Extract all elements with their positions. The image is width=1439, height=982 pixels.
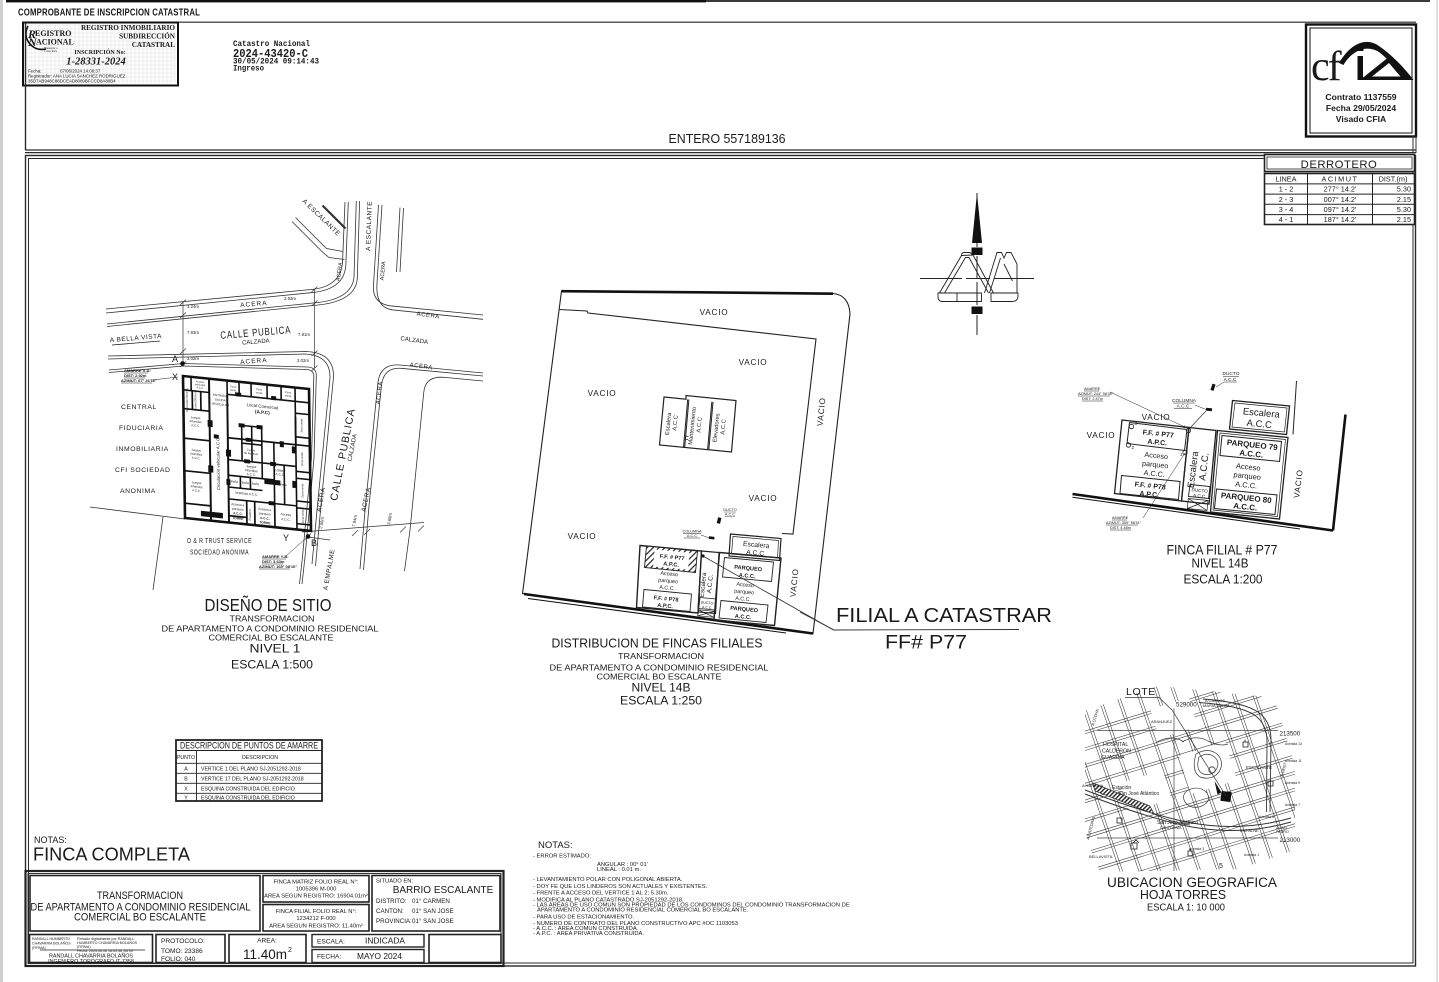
svg-text:(FIRMA): (FIRMA): [32, 946, 46, 950]
svg-text:1005396 M-000: 1005396 M-000: [296, 887, 337, 893]
svg-text:CALDERON: CALDERON: [1102, 749, 1131, 755]
svg-text:FINCA COMPLETA: FINCA COMPLETA: [33, 844, 191, 865]
svg-text:Zona verde: Zona verde: [300, 483, 304, 498]
svg-text:Cuarto Eléctrico: Cuarto Eléctrico: [193, 391, 197, 411]
svg-text:Baño: Baño: [231, 479, 239, 484]
svg-text:1: 1: [1180, 452, 1183, 457]
svg-text:ACIMUT: ACIMUT: [1322, 174, 1359, 183]
svg-text:REGISTRO INMOBILIARIO: REGISTRO INMOBILIARIO: [81, 24, 175, 32]
svg-text:5.30: 5.30: [1397, 185, 1411, 194]
svg-text:LINEA: LINEA: [1275, 174, 1296, 183]
svg-text:COMPROBANTE DE INSCRIPCION CAT: COMPROBANTE DE INSCRIPCION CATASTRAL: [18, 8, 200, 19]
svg-text:A: A: [172, 354, 178, 364]
svg-text:DUCTO: DUCTO: [723, 508, 736, 512]
svg-text:CFI SOCIEDAD: CFI SOCIEDAD: [115, 467, 171, 474]
svg-text:FILIAL A CATASTRAR: FILIAL A CATASTRAR: [836, 605, 1052, 627]
svg-text:- LEVANTAMIENTO POLAR CON POLI: - LEVANTAMIENTO POLAR CON POLIGONAL ABIE…: [533, 877, 683, 883]
svg-text:Avenida 11: Avenida 11: [1285, 759, 1302, 763]
svg-text:AZIMUT: 244° 56'46": AZIMUT: 244° 56'46": [1078, 392, 1114, 396]
svg-text:2 - 3: 2 - 3: [1279, 195, 1294, 204]
svg-text:DESCRIPCION DE PUNTOS DE AMARR: DESCRIPCION DE PUNTOS DE AMARRE: [180, 741, 318, 751]
svg-text:CATASTRAL: CATASTRAL: [132, 41, 175, 49]
svg-text:BELLAVISTA: BELLAVISTA: [1089, 854, 1113, 859]
svg-text:ESQUINA CONSTRUIDA DEL EDIFICI: ESQUINA CONSTRUIDA DEL EDIFICIO: [201, 796, 295, 802]
svg-text:1-28331-2024: 1-28331-2024: [66, 57, 126, 68]
svg-text:- DOY FE QUE LOS LINDEROS SON: - DOY FE QUE LOS LINDEROS SON ACTUALES Y…: [533, 884, 708, 890]
svg-text:2.15: 2.15: [1397, 195, 1411, 204]
svg-text:01° SAN JOSE: 01° SAN JOSE: [412, 918, 454, 925]
svg-text:INMOBILIARIA: INMOBILIARIA: [116, 446, 169, 453]
svg-text:ESCALA 1:250: ESCALA 1:250: [620, 694, 702, 708]
svg-text:TRANSFORMACION: TRANSFORMACION: [618, 651, 704, 661]
svg-text:ESCALA 1:200: ESCALA 1:200: [1184, 573, 1263, 587]
svg-text:CENTRAL: CENTRAL: [121, 404, 157, 411]
svg-text:Y: Y: [283, 533, 289, 543]
svg-text:Circulación vehicular A.C.C.: Circulación vehicular A.C.C.: [215, 436, 221, 490]
svg-text:SUBDIRECCIÓN: SUBDIRECCIÓN: [119, 31, 176, 41]
svg-text:213500: 213500: [1280, 731, 1301, 738]
svg-text:PROTOCOLO:: PROTOCOLO:: [161, 938, 205, 945]
svg-text:2: 2: [288, 947, 292, 954]
svg-text:DESCRIPCION: DESCRIPCION: [242, 755, 278, 761]
svg-text:cf: cf: [1311, 44, 1342, 90]
svg-text:MAYO 2024: MAYO 2024: [357, 951, 402, 961]
svg-text:FF# P77: FF# P77: [885, 633, 967, 654]
svg-text:MARIA ULLOA: MARIA ULLOA: [1203, 703, 1230, 708]
svg-text:DISTRITO:: DISTRITO:: [376, 898, 407, 905]
svg-text:3.02m: 3.02m: [297, 358, 309, 363]
svg-text:35D7AB948C88DCEAD8089BFCCD8A80: 35D7AB948C88DCEAD8089BFCCD8A80B4: [28, 79, 116, 84]
svg-text:NIVEL 14B: NIVEL 14B: [1192, 557, 1249, 571]
svg-text:NIVEL 14B: NIVEL 14B: [632, 681, 691, 695]
svg-text:- FRENTE A ACCESO DEL VERTICE: - FRENTE A ACCESO DEL VERTICE 1 AL 2: 5.…: [533, 891, 669, 897]
svg-text:AZIMUT: 359° 56'51": AZIMUT: 359° 56'51": [1106, 521, 1142, 525]
svg-text:AMARRE: AMARRE: [1112, 516, 1129, 520]
svg-text:097° 14.2': 097° 14.2': [1324, 205, 1357, 214]
svg-text:AZIMUT: 67° 26'16": AZIMUT: 67° 26'16": [121, 378, 157, 383]
svg-text:7.91m: 7.91m: [298, 332, 310, 337]
svg-text:213000: 213000: [1280, 837, 1301, 844]
svg-text:Ingreso: Ingreso: [233, 65, 264, 74]
svg-text:VACIO: VACIO: [749, 494, 778, 503]
svg-text:A.C.C.: A.C.C.: [196, 385, 204, 390]
svg-text:FECHA:: FECHA:: [317, 954, 341, 961]
svg-text:- PARA USO DE ESTACIONAMIENTO.: - PARA USO DE ESTACIONAMIENTO.: [533, 915, 635, 921]
svg-text:X: X: [184, 787, 188, 793]
svg-text:AREA:: AREA:: [257, 938, 277, 945]
svg-text:1 - 2: 1 - 2: [1279, 185, 1294, 194]
svg-text:verde: verde: [285, 393, 292, 398]
svg-text:Zona verde: Zona verde: [299, 418, 303, 433]
svg-text:Avenida 9: Avenida 9: [1285, 781, 1300, 785]
svg-text:A: A: [184, 767, 188, 773]
svg-text:CANTON:: CANTON:: [376, 908, 404, 915]
svg-text:1234212 F-000: 1234212 F-000: [296, 916, 335, 922]
svg-text:3 - 4: 3 - 4: [1279, 205, 1294, 214]
svg-text:5: 5: [1219, 863, 1223, 870]
svg-text:COLUMNA: COLUMNA: [683, 530, 702, 534]
svg-text:187° 14.2': 187° 14.2': [1324, 215, 1357, 224]
svg-text:2: 2: [1132, 445, 1135, 450]
svg-text:Baño: Baño: [242, 480, 250, 485]
svg-text:2.93m: 2.93m: [284, 296, 296, 301]
svg-text:ESCALA:: ESCALA:: [317, 939, 345, 946]
svg-text:FIDUCIARIA: FIDUCIARIA: [119, 425, 164, 432]
svg-text:AZIMUT: 165° 08'16": AZIMUT: 165° 08'16": [259, 564, 297, 569]
svg-text:007° 14.2': 007° 14.2': [1324, 195, 1357, 204]
svg-text:verde: verde: [230, 388, 237, 393]
svg-text:01° SAN JOSE: 01° SAN JOSE: [412, 908, 454, 915]
svg-text:O & R TRUST SERVICE: O & R TRUST SERVICE: [187, 536, 252, 545]
svg-text:B: B: [184, 777, 188, 783]
svg-text:Avenida 5: Avenida 5: [1259, 815, 1274, 819]
svg-text:Avenida 7: Avenida 7: [1285, 803, 1300, 807]
svg-text:ENTERO 557189136: ENTERO 557189136: [669, 132, 786, 146]
svg-text:FINCA MATRIZ FOLIO REAL N°:: FINCA MATRIZ FOLIO REAL N°:: [273, 880, 358, 886]
svg-text:VACIO: VACIO: [568, 532, 597, 541]
svg-text:TOMO: 23386: TOMO: 23386: [161, 948, 203, 955]
svg-text:COMERCIAL BO ESCALANTE: COMERCIAL BO ESCALANTE: [74, 912, 206, 924]
svg-text:Avenida 1: Avenida 1: [1244, 853, 1259, 857]
svg-text:PEDRO: PEDRO: [1276, 830, 1289, 834]
svg-text:01° CARMEN: 01° CARMEN: [412, 898, 450, 905]
svg-text:BARRIO ESCALANTE: BARRIO ESCALANTE: [393, 885, 494, 896]
svg-text:B: B: [311, 538, 317, 548]
svg-text:ESCALA 1:500: ESCALA 1:500: [231, 658, 313, 672]
svg-text:3.02m: 3.02m: [187, 356, 199, 361]
svg-text:DIST: 4.48m: DIST: 4.48m: [1110, 526, 1131, 530]
svg-text:4 - 1: 4 - 1: [1279, 215, 1294, 224]
svg-text:A.C.C: A.C.C: [687, 534, 697, 538]
svg-text:VACIO: VACIO: [1142, 413, 1171, 422]
svg-text:TRANSFORMACION: TRANSFORMACION: [230, 614, 315, 624]
svg-text:11.40m: 11.40m: [243, 947, 287, 962]
svg-text:CHAVARRIA BOLAÑOS: CHAVARRIA BOLAÑOS: [32, 941, 71, 946]
svg-text:LOTE: LOTE: [1126, 686, 1156, 698]
svg-text:3: 3: [1135, 421, 1138, 426]
svg-text:APARTAMENTO A CONDOMINIO RESID: APARTAMENTO A CONDOMINIO RESIDENCIAL COM…: [537, 908, 749, 914]
svg-text:Visado CFIA: Visado CFIA: [1336, 114, 1386, 124]
svg-text:ESCALANTE: ESCALANTE: [1246, 765, 1272, 770]
svg-text:CALIFORNIA: CALIFORNIA: [1160, 826, 1182, 830]
svg-text:ANONIMA: ANONIMA: [120, 488, 156, 495]
svg-text:PUNTO: PUNTO: [177, 755, 195, 761]
svg-text:FINCA FILIAL # P77: FINCA FILIAL # P77: [1167, 542, 1278, 558]
svg-text:ESQUINA CONSTRUIDA DEL EDIFICI: ESQUINA CONSTRUIDA DEL EDIFICIO: [201, 787, 295, 793]
svg-text:VERTICE 1 DEL PLANO SJ-2051292: VERTICE 1 DEL PLANO SJ-2051292-2018: [201, 767, 301, 773]
svg-text:A.C.C: A.C.C: [725, 513, 735, 517]
svg-text:- ERROR ESTIMADO:: - ERROR ESTIMADO:: [533, 854, 591, 860]
svg-text:TRANSFORMACION: TRANSFORMACION: [97, 890, 183, 902]
svg-text:LINEAL : 0.01 m.: LINEAL : 0.01 m.: [597, 867, 641, 873]
svg-text:Y: Y: [184, 796, 188, 802]
svg-text:AMARRE: AMARRE: [1084, 387, 1101, 391]
svg-text:NIVEL 1: NIVEL 1: [250, 642, 301, 656]
svg-text:EMPALNE: EMPALNE: [1240, 828, 1259, 833]
svg-text:529000: 529000: [1176, 702, 1197, 709]
svg-text:7.93m: 7.93m: [187, 330, 199, 335]
svg-text:ARANJUEZ: ARANJUEZ: [1151, 719, 1173, 724]
svg-text:277° 14.2': 277° 14.2': [1324, 185, 1357, 194]
svg-text:RANDALL HUMBERTO: RANDALL HUMBERTO: [32, 937, 70, 941]
svg-text:Zona verde: Zona verde: [301, 509, 305, 524]
svg-text:HOJA TORRES: HOJA TORRES: [1140, 887, 1226, 902]
svg-text:3.24m: 3.24m: [187, 304, 199, 309]
svg-text:INGENIERO TOPOGRAFO IT-7358: INGENIERO TOPOGRAFO IT-7358: [48, 959, 134, 965]
svg-text:PROVINCIA:: PROVINCIA:: [376, 918, 412, 925]
svg-text:Costa Rica: Costa Rica: [44, 49, 58, 53]
svg-text:SITUADO EN:: SITUADO EN:: [376, 879, 413, 885]
svg-text:5.30: 5.30: [1397, 205, 1411, 214]
svg-text:DUCTO: DUCTO: [1223, 371, 1240, 377]
svg-text:DIST: 2.47m: DIST: 2.47m: [1082, 397, 1103, 401]
svg-text:INSCRIPCIÓN No:: INSCRIPCIÓN No:: [74, 48, 125, 56]
svg-text:NOTAS:: NOTAS:: [538, 840, 573, 851]
svg-text:verde: verde: [256, 390, 263, 395]
svg-text:VACIO: VACIO: [700, 308, 729, 317]
svg-text:ESCALA 1: 10 000: ESCALA 1: 10 000: [1147, 902, 1225, 914]
svg-text:FOLIO: 040: FOLIO: 040: [161, 956, 196, 963]
svg-text:Avenida 13: Avenida 13: [1285, 742, 1302, 746]
svg-text:DERROTERO: DERROTERO: [1301, 159, 1378, 171]
svg-text:AREA SEGUN REGISTRO: 11.40m²: AREA SEGUN REGISTRO: 11.40m²: [269, 924, 363, 930]
svg-text:- A.P.C. : AREA PRIVATIVA CON: - A.P.C. : AREA PRIVATIVA CONSTRUIDA.: [533, 931, 644, 937]
svg-text:VACIO: VACIO: [588, 389, 617, 398]
svg-text:GUARDIA: GUARDIA: [1101, 755, 1125, 761]
svg-text:Generador Eléctrico: Generador Eléctrico: [185, 388, 189, 412]
svg-text:HOSPITAL: HOSPITAL: [1103, 742, 1128, 748]
svg-text:VACIO: VACIO: [739, 358, 768, 367]
svg-text:AREA SEGUN REGISTRO: 16904.01m: AREA SEGUN REGISTRO: 16904.01m²: [264, 894, 368, 900]
svg-text:A HEREDIA: A HEREDIA: [1082, 783, 1104, 788]
svg-text:DISTRIBUCION DE FINCAS FILIALE: DISTRIBUCION DE FINCAS FILIALES: [552, 636, 763, 651]
svg-text:VACIO: VACIO: [1087, 431, 1116, 440]
svg-text:2.15: 2.15: [1397, 215, 1411, 224]
svg-text:Escalera: Escalera: [248, 509, 252, 521]
svg-text:San José Atlántico: San José Atlántico: [1118, 791, 1159, 797]
svg-text:Zona verde: Zona verde: [300, 452, 304, 467]
svg-text:DISEÑO DE SITIO: DISEÑO DE SITIO: [205, 594, 332, 615]
svg-text:Avenida 3: Avenida 3: [1189, 847, 1204, 851]
svg-text:Fecha 29/05/2024: Fecha 29/05/2024: [1326, 103, 1396, 113]
svg-text:Contrato 1137559: Contrato 1137559: [1325, 92, 1396, 102]
svg-text:SOCIEDAD ANONIMA: SOCIEDAD ANONIMA: [190, 548, 249, 557]
svg-text:DIST.(m): DIST.(m): [1379, 174, 1408, 183]
svg-text:FINCA FILIAL FOLIO REAL N°:: FINCA FILIAL FOLIO REAL N°:: [276, 909, 357, 915]
svg-text:VERTICE 17 DEL PLANO SJ-205129: VERTICE 17 DEL PLANO SJ-2051292-2018: [201, 777, 304, 783]
svg-text:Baño: Baño: [252, 482, 260, 487]
svg-text:INDICADA: INDICADA: [365, 936, 405, 946]
